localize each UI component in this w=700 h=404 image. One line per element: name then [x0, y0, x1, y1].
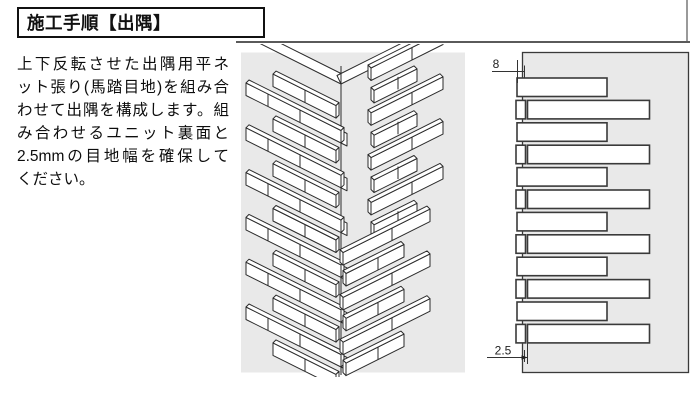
dimension-joint-width: 2.5 — [487, 344, 528, 365]
intro-line: 上下反転させた出隅用平ネ — [17, 53, 229, 76]
tile-row-protruding — [517, 123, 607, 142]
intro-line: 2.5mmの目地幅を確保して — [17, 145, 229, 168]
intro-line: み合わせるユニット裏面と — [17, 122, 229, 145]
corner-isometric-diagram — [236, 40, 468, 380]
page-root: 施工手順【出隅】 上下反転させた出隅用平ネ ット張り(馬踏目地)を組み合 わせて… — [0, 0, 700, 404]
dimension-protrusion-label: 8 — [493, 57, 500, 71]
column-rule-stub — [686, 0, 688, 41]
intro-line: ください。 — [17, 168, 229, 191]
tile-row-protruding — [517, 302, 607, 321]
corner-detail-diagram: 8 2.5 — [478, 40, 700, 384]
tile-row-protruding — [517, 212, 607, 231]
tile-row-recessed — [516, 100, 650, 119]
title-box: 施工手順【出隅】 — [17, 7, 265, 38]
tile-row-recessed — [516, 280, 650, 299]
tile-row-protruding — [517, 78, 607, 97]
page-title: 施工手順【出隅】 — [19, 10, 171, 35]
tile-row-recessed — [516, 145, 650, 164]
tile-row-recessed — [516, 235, 650, 254]
intro-paragraph: 上下反転させた出隅用平ネ ット張り(馬踏目地)を組み合 わせて出隅を構成します。… — [17, 53, 229, 191]
intro-line: わせて出隅を構成します。組 — [17, 99, 229, 122]
tile-row-recessed — [516, 190, 650, 209]
tile-row-recessed — [516, 324, 650, 343]
dimension-joint-label: 2.5 — [495, 344, 512, 358]
tile-row-protruding — [517, 257, 607, 276]
tile-row-protruding — [517, 168, 607, 187]
intro-line: ット張り(馬踏目地)を組み合 — [17, 76, 229, 99]
